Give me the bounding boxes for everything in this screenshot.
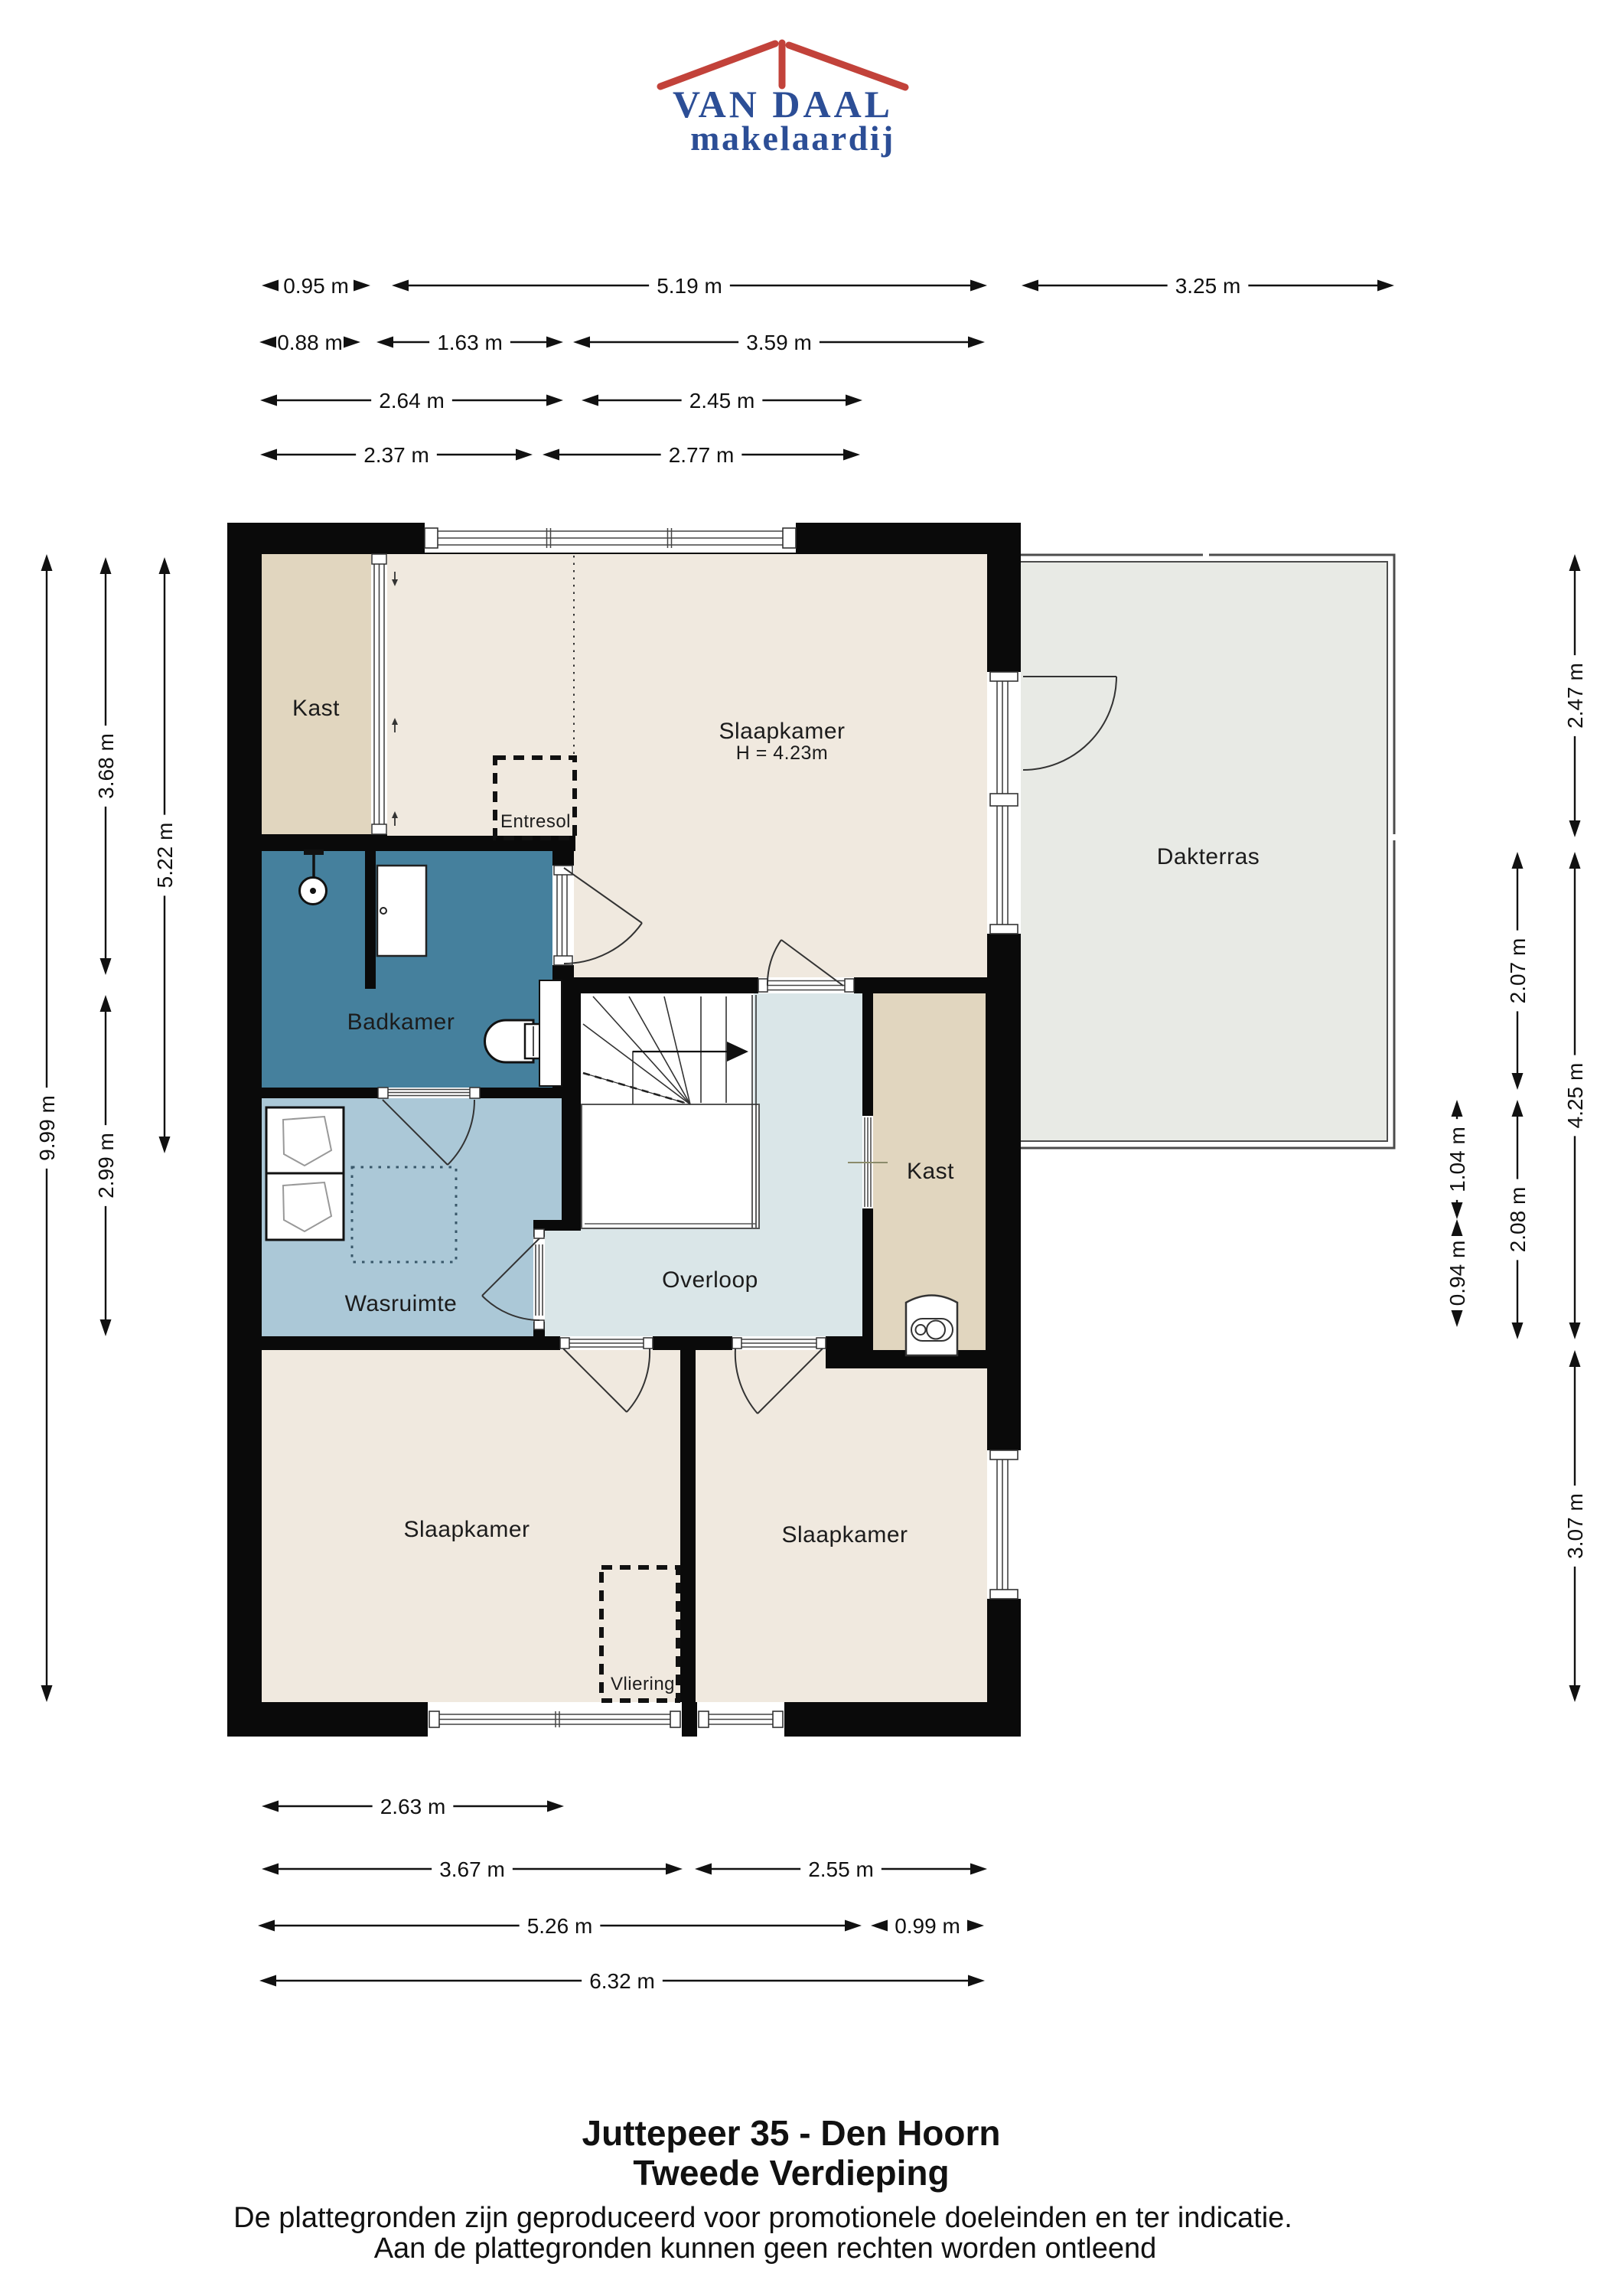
svg-text:5.22 m: 5.22 m xyxy=(153,823,177,889)
svg-text:Juttepeer 35 - Den Hoorn: Juttepeer 35 - Den Hoorn xyxy=(582,2113,1001,2153)
svg-text:Entresol: Entresol xyxy=(500,811,571,832)
svg-text:2.47 m: 2.47 m xyxy=(1563,663,1587,729)
svg-text:2.45 m: 2.45 m xyxy=(689,389,755,413)
svg-text:makelaardij: makelaardij xyxy=(690,119,895,158)
svg-text:4.25 m: 4.25 m xyxy=(1563,1063,1587,1129)
svg-text:1.63 m: 1.63 m xyxy=(437,331,503,354)
svg-text:2.08 m: 2.08 m xyxy=(1506,1187,1530,1253)
svg-text:0.94 m: 0.94 m xyxy=(1445,1241,1469,1306)
svg-text:3.59 m: 3.59 m xyxy=(746,331,812,354)
svg-text:2.63 m: 2.63 m xyxy=(380,1795,446,1818)
svg-text:6.32 m: 6.32 m xyxy=(589,1969,655,1993)
svg-text:3.25 m: 3.25 m xyxy=(1175,274,1241,298)
svg-text:9.99 m: 9.99 m xyxy=(35,1095,59,1161)
svg-text:2.37 m: 2.37 m xyxy=(363,443,429,467)
svg-text:0.95 m: 0.95 m xyxy=(283,274,349,298)
svg-text:De plattegronden zijn geproduc: De plattegronden zijn geproduceerd voor … xyxy=(233,2202,1292,2234)
svg-text:Tweede Verdieping: Tweede Verdieping xyxy=(633,2153,949,2193)
svg-text:2.77 m: 2.77 m xyxy=(669,443,735,467)
svg-text:Overloop: Overloop xyxy=(662,1267,758,1293)
svg-text:Vliering: Vliering xyxy=(611,1674,675,1694)
svg-text:2.64 m: 2.64 m xyxy=(379,389,445,413)
svg-text:3.07 m: 3.07 m xyxy=(1563,1493,1587,1559)
svg-text:2.55 m: 2.55 m xyxy=(808,1857,874,1881)
svg-text:Slaapkamer: Slaapkamer xyxy=(781,1522,908,1548)
svg-text:2.07 m: 2.07 m xyxy=(1506,938,1530,1004)
svg-text:Kast: Kast xyxy=(907,1159,954,1184)
svg-text:0.99 m: 0.99 m xyxy=(895,1914,960,1938)
svg-text:5.19 m: 5.19 m xyxy=(657,274,722,298)
svg-text:H = 4.23m: H = 4.23m xyxy=(736,742,829,764)
svg-text:Wasruimte: Wasruimte xyxy=(345,1291,458,1316)
svg-text:Badkamer: Badkamer xyxy=(347,1009,455,1035)
svg-text:5.26 m: 5.26 m xyxy=(527,1914,593,1938)
svg-text:Slaapkamer: Slaapkamer xyxy=(719,719,845,744)
svg-text:Slaapkamer: Slaapkamer xyxy=(403,1517,530,1542)
svg-text:1.04 m: 1.04 m xyxy=(1445,1127,1469,1192)
svg-text:0.88 m: 0.88 m xyxy=(277,331,343,354)
svg-text:Aan de plattegronden kunnen ge: Aan de plattegronden kunnen geen rechten… xyxy=(374,2232,1157,2265)
svg-text:Kast: Kast xyxy=(292,696,340,721)
svg-text:3.68 m: 3.68 m xyxy=(94,733,118,799)
svg-text:3.67 m: 3.67 m xyxy=(439,1857,505,1881)
svg-text:Dakterras: Dakterras xyxy=(1157,844,1260,869)
svg-text:2.99 m: 2.99 m xyxy=(94,1133,118,1199)
